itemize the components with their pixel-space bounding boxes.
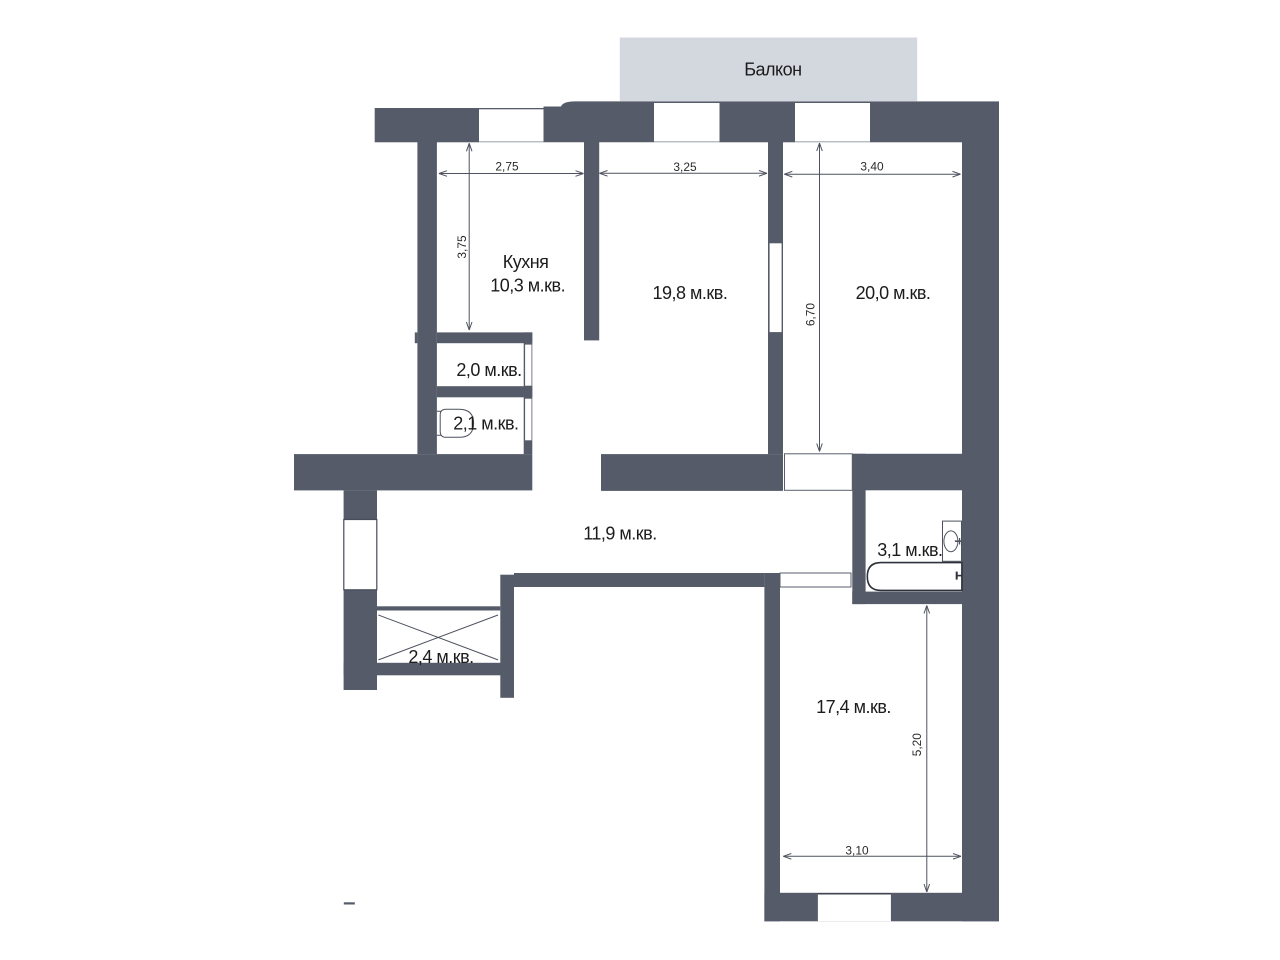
svg-text:2,1 м.кв.: 2,1 м.кв. <box>453 413 518 433</box>
svg-text:2,75: 2,75 <box>495 159 519 173</box>
svg-text:Балкон: Балкон <box>744 59 801 79</box>
svg-text:3,25: 3,25 <box>673 160 697 174</box>
svg-text:20,0 м.кв.: 20,0 м.кв. <box>856 283 931 303</box>
svg-text:3,40: 3,40 <box>860 159 884 173</box>
svg-text:2,0 м.кв.: 2,0 м.кв. <box>456 360 521 380</box>
svg-text:6,70: 6,70 <box>803 303 817 327</box>
svg-text:3,10: 3,10 <box>845 843 869 857</box>
svg-text:10,3 м.кв.: 10,3 м.кв. <box>490 275 565 295</box>
svg-text:17,4 м.кв.: 17,4 м.кв. <box>816 697 891 717</box>
svg-text:Кухня: Кухня <box>503 252 549 272</box>
svg-text:3,1 м.кв.: 3,1 м.кв. <box>877 540 942 560</box>
svg-text:19,8 м.кв.: 19,8 м.кв. <box>652 283 727 303</box>
svg-text:3,75: 3,75 <box>455 235 469 259</box>
svg-text:5,20: 5,20 <box>910 733 924 757</box>
svg-text:2,4 м.кв.: 2,4 м.кв. <box>408 647 473 667</box>
svg-text:11,9 м.кв.: 11,9 м.кв. <box>583 523 657 543</box>
